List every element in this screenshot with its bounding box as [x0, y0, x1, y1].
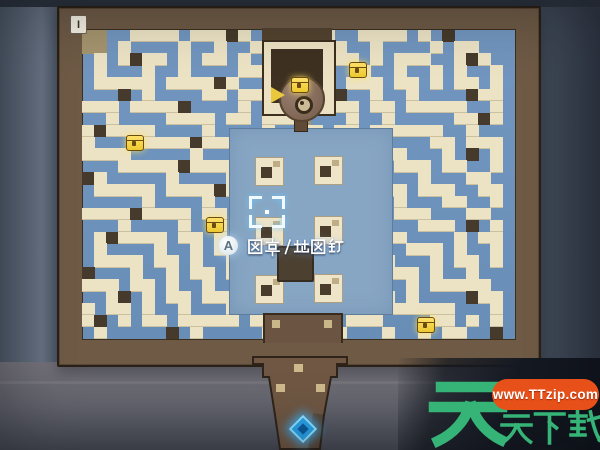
maze-cell: [442, 279, 455, 292]
maze-cell: [478, 172, 491, 185]
maze-cell: [454, 196, 467, 209]
maze-cell: [454, 243, 467, 256]
maze-cell: [82, 148, 95, 161]
maze-cell: [94, 232, 107, 245]
maze-cell: [106, 255, 119, 268]
maze-cell: [370, 53, 383, 66]
maze-cell: [154, 243, 167, 256]
maze-cell: [442, 315, 455, 328]
maze-cell: [490, 89, 503, 102]
maze-cell: [166, 160, 179, 173]
maze-cell: [442, 160, 455, 173]
maze-cell: [406, 303, 419, 316]
maze-cell: [238, 101, 251, 114]
maze-cell: [490, 291, 503, 304]
maze-cell: [238, 30, 251, 43]
maze-cell: [214, 315, 227, 328]
maze-cell: [382, 327, 395, 340]
chest-icon: [417, 317, 435, 333]
maze-cell: [94, 243, 107, 256]
maze-cell: [202, 267, 215, 280]
maze-cell: [418, 243, 431, 256]
glyph-di: [295, 241, 308, 252]
maze-cell: [370, 315, 383, 328]
maze-cell: [94, 41, 107, 54]
maze-cell: [178, 220, 191, 233]
exit-step: [272, 320, 280, 328]
maze-cell: [466, 315, 479, 328]
maze-cell: [490, 148, 503, 161]
maze-cell: [166, 267, 179, 280]
maze-cell: [370, 101, 383, 114]
maze-cell: [142, 89, 155, 102]
maze-cell: [478, 89, 491, 102]
maze-cell: [394, 148, 407, 161]
watermark-brand-glyphs: [500, 407, 600, 449]
cursor-corner: [249, 215, 262, 228]
maze-cell: [358, 77, 371, 90]
maze-cell: [382, 30, 395, 43]
maze-cell: [130, 255, 143, 268]
maze-cell: [394, 30, 407, 43]
maze-cell: [490, 113, 503, 126]
maze-cell: [190, 77, 203, 90]
maze-cell: [394, 65, 407, 78]
maze-cell: [466, 89, 479, 102]
maze-cell: [430, 279, 443, 292]
maze-cell: [166, 137, 179, 150]
maze-cell: [166, 327, 179, 340]
maze-cell: [94, 279, 107, 292]
maze-cell: [118, 255, 131, 268]
maze-cell: [190, 327, 203, 340]
maze-cell: [178, 65, 191, 78]
maze-cell: [490, 327, 503, 340]
maze-cell: [214, 184, 227, 197]
maze-cell: [430, 303, 443, 316]
maze-cell: [250, 65, 263, 78]
maze-cell: [478, 291, 491, 304]
block-shade: [332, 160, 339, 166]
maze-cell: [106, 113, 119, 126]
glyph-xia: [536, 414, 565, 443]
block-shade: [332, 220, 339, 226]
maze-cell: [154, 160, 167, 173]
maze-cell: [94, 53, 107, 66]
maze-cell: [178, 137, 191, 150]
maze-cell: [466, 53, 479, 66]
maze-cell: [418, 30, 431, 43]
maze-cell: [442, 184, 455, 197]
maze-cell: [454, 53, 467, 66]
chest-lock: [212, 223, 216, 228]
maze-cell: [118, 208, 131, 221]
maze-cell: [430, 65, 443, 78]
cursor-corner: [272, 215, 285, 228]
a-button-letter: A: [224, 238, 233, 253]
maze-cell: [106, 291, 119, 304]
maze-cell: [178, 315, 191, 328]
maze-cell: [82, 101, 95, 114]
chest-lock: [297, 83, 301, 88]
maze-cell: [190, 255, 203, 268]
maze-cell: [214, 30, 227, 43]
maze-cell: [346, 113, 359, 126]
chest-icon: [206, 217, 224, 233]
maze-cell: [214, 160, 227, 173]
maze-cell: [178, 160, 191, 173]
maze-cell: [214, 77, 227, 90]
maze-cell: [130, 267, 143, 280]
maze-cell: [142, 184, 155, 197]
maze-cell: [142, 53, 155, 66]
maze-cell: [442, 101, 455, 114]
glyph-tu: [249, 240, 262, 253]
maze-cell: [226, 77, 239, 90]
maze-cell: [214, 41, 227, 54]
block-inset: [320, 226, 331, 237]
maze-cell: [478, 208, 491, 221]
maze-cell: [154, 101, 167, 114]
maze-cell: [166, 279, 179, 292]
maze-cell: [454, 77, 467, 90]
maze-cell: [406, 77, 419, 90]
maze-cell: [190, 243, 203, 256]
maze-cell: [490, 184, 503, 197]
maze-cell: [106, 279, 119, 292]
maze-cell: [94, 172, 107, 185]
maze-cell: [430, 220, 443, 233]
maze-cell: [130, 160, 143, 173]
maze-cell: [442, 30, 455, 43]
maze-cell: [250, 41, 263, 54]
glyph-tu2: [312, 240, 325, 253]
maze-cell: [346, 101, 359, 114]
maze-cell: [394, 232, 407, 245]
maze-cell: [250, 89, 263, 102]
maze-cell: [178, 77, 191, 90]
maze-cell: [118, 232, 131, 245]
maze-cell: [454, 255, 467, 268]
entrance-step: [294, 364, 303, 372]
maze-cell: [142, 208, 155, 221]
maze-cell: [190, 315, 203, 328]
maze-cell: [238, 89, 251, 102]
maze-cell: [430, 125, 443, 138]
maze-cell: [406, 53, 419, 66]
maze-cell: [214, 137, 227, 150]
maze-cell: [130, 279, 143, 292]
maze-cell: [394, 160, 407, 173]
maze-cell: [202, 160, 215, 173]
maze-cell: [466, 267, 479, 280]
maze-cell: [454, 160, 467, 173]
maze-cell: [202, 291, 215, 304]
maze-cell: [190, 137, 203, 150]
maze-cell: [142, 315, 155, 328]
maze-cell: [430, 101, 443, 114]
maze-cell: [94, 77, 107, 90]
background-right: [537, 0, 600, 366]
maze-cell: [106, 125, 119, 138]
maze-cell: [178, 113, 191, 126]
maze-cell: [106, 101, 119, 114]
maze-cell: [430, 77, 443, 90]
maze-cell: [154, 30, 167, 43]
maze-cell: [202, 53, 215, 66]
region-label-badge: I: [70, 15, 87, 34]
maze-cell: [490, 232, 503, 245]
maze-cell: [118, 220, 131, 233]
maze-cell: [82, 208, 95, 221]
maze-cell: [142, 160, 155, 173]
chest-lock: [355, 68, 359, 73]
maze-cell: [466, 41, 479, 54]
maze-cell: [430, 184, 443, 197]
maze-cell: [406, 279, 419, 292]
maze-cell: [202, 196, 215, 209]
maze-cell: [430, 41, 443, 54]
maze-cell: [106, 77, 119, 90]
maze-cell: [142, 30, 155, 43]
platform-block: [255, 157, 284, 186]
maze-cell: [466, 279, 479, 292]
maze-cell: [166, 172, 179, 185]
maze-cell: [106, 184, 119, 197]
maze-cell: [394, 77, 407, 90]
watermark-url-pill: www.TTzip.com: [492, 379, 599, 410]
maze-cell: [190, 148, 203, 161]
maze-cell: [226, 30, 239, 43]
maze-cell: [178, 303, 191, 316]
hint-label-glyphs: [248, 238, 344, 257]
maze-cell: [490, 137, 503, 150]
platform-block: [314, 274, 343, 303]
maze-cell: [118, 89, 131, 102]
maze-cell: [94, 148, 107, 161]
maze-cell: [466, 291, 479, 304]
maze-cell: [142, 232, 155, 245]
maze-cell: [154, 53, 167, 66]
region-label: I: [77, 19, 80, 31]
maze-cell: [490, 255, 503, 268]
maze-cell: [250, 315, 263, 328]
maze-cell: [466, 113, 479, 126]
maze-cell: [94, 255, 107, 268]
maze-cell: [94, 327, 107, 340]
maze-cell: [142, 196, 155, 209]
maze-cell: [82, 303, 95, 316]
map-cursor[interactable]: [249, 196, 285, 228]
maze-cell: [106, 208, 119, 221]
maze-cell: [154, 315, 167, 328]
maze-cell: [406, 208, 419, 221]
maze-cell: [238, 65, 251, 78]
maze-cell: [130, 184, 143, 197]
maze-cell: [394, 125, 407, 138]
maze-cell: [346, 315, 359, 328]
glyph-ding: [329, 239, 342, 251]
block-inset: [261, 227, 272, 238]
maze-cell: [358, 30, 371, 43]
maze-cell: [418, 303, 431, 316]
maze-cell: [406, 89, 419, 102]
maze-cell: [370, 41, 383, 54]
maze-cell: [130, 77, 143, 90]
maze-cell: [190, 232, 203, 245]
maze-cell: [178, 208, 191, 221]
maze-cell: [166, 255, 179, 268]
maze-cell: [94, 208, 107, 221]
maze-cell: [226, 113, 239, 126]
maze-cell: [490, 101, 503, 114]
maze-cell: [466, 125, 479, 138]
maze-cell: [490, 65, 503, 78]
maze-cell: [166, 101, 179, 114]
maze-cell: [178, 291, 191, 304]
maze-cell: [118, 303, 131, 316]
maze-cell: [478, 279, 491, 292]
maze-cell: [166, 184, 179, 197]
maze-cell: [370, 89, 383, 102]
maze-cell: [442, 303, 455, 316]
maze-cell: [166, 113, 179, 126]
chest-lock: [132, 141, 136, 146]
maze-cell: [454, 41, 467, 54]
chest-lock: [423, 323, 427, 328]
entrance-step: [316, 384, 325, 392]
maze-cell: [406, 243, 419, 256]
maze-cell: [490, 315, 503, 328]
maze-cell: [238, 113, 251, 126]
maze-cell: [490, 303, 503, 316]
maze-cell: [454, 65, 467, 78]
maze-cell: [118, 160, 131, 173]
maze-cell: [442, 148, 455, 161]
maze-cell: [82, 172, 95, 185]
maze-cell: [190, 30, 203, 43]
maze-cell: [466, 77, 479, 90]
maze-cell: [202, 184, 215, 197]
maze-cell: [406, 291, 419, 304]
maze-cell: [466, 148, 479, 161]
block-shade: [332, 278, 339, 284]
maze-cell: [430, 137, 443, 150]
maze-cell: [214, 89, 227, 102]
maze-cell: [142, 65, 155, 78]
maze-cell: [394, 303, 407, 316]
maze-cell: [466, 172, 479, 185]
chest-icon: [126, 135, 144, 151]
maze-cell: [382, 101, 395, 114]
maze-cell: [178, 184, 191, 197]
block-shade: [273, 161, 280, 167]
maze-cell: [418, 101, 431, 114]
maze-cell: [418, 220, 431, 233]
maze-cell: [202, 77, 215, 90]
maze-cell: [190, 113, 203, 126]
maze-cell: [394, 196, 407, 209]
maze-cell: [130, 232, 143, 245]
background-left-glare: [0, 0, 60, 366]
maze-cell: [166, 291, 179, 304]
maze-cell: [154, 255, 167, 268]
maze-cell: [118, 291, 131, 304]
maze-cell: [82, 267, 95, 280]
glyph-slash: [286, 240, 291, 253]
maze-cell: [94, 184, 107, 197]
maze-cell: [142, 77, 155, 90]
maze-cell: [142, 125, 155, 138]
maze-cell: [202, 125, 215, 138]
glyph-zai: [570, 411, 600, 441]
maze-cell: [202, 30, 215, 43]
maze-cell: [490, 160, 503, 173]
maze-cell: [466, 208, 479, 221]
maze-cell: [442, 220, 455, 233]
maze-cell: [154, 137, 167, 150]
maze-cell: [430, 243, 443, 256]
cursor-corner: [272, 196, 285, 209]
maze-cell: [478, 113, 491, 126]
south-exit-passage: [263, 313, 343, 343]
maze-cell: [154, 232, 167, 245]
maze-cell: [406, 125, 419, 138]
maze-cell: [142, 291, 155, 304]
maze-cell: [202, 315, 215, 328]
screenshot-photo: I A 图章/地: [0, 0, 600, 450]
maze-cell: [130, 53, 143, 66]
glyph-tian: [502, 416, 531, 443]
maze-cell: [166, 77, 179, 90]
maze-cell: [454, 101, 467, 114]
maze-cell: [394, 267, 407, 280]
maze-cell: [130, 101, 143, 114]
maze-cell: [82, 279, 95, 292]
maze-cell: [394, 208, 407, 221]
maze-cell: [478, 232, 491, 245]
maze-cell: [178, 41, 191, 54]
maze-cell: [178, 232, 191, 245]
maze-cell: [418, 208, 431, 221]
maze-cell: [202, 113, 215, 126]
maze-cell: [118, 184, 131, 197]
maze-cell: [406, 160, 419, 173]
maze-cell: [190, 160, 203, 173]
maze-cell: [214, 53, 227, 66]
maze-cell: [94, 315, 107, 328]
maze-cell: [490, 220, 503, 233]
maze-cell: [118, 315, 131, 328]
maze-cell: [454, 232, 467, 245]
maze-cell: [442, 196, 455, 209]
maze-cell: [346, 77, 359, 90]
maze-cell: [418, 184, 431, 197]
maze-cell: [94, 125, 107, 138]
a-button-icon[interactable]: A: [219, 236, 238, 255]
maze-cell: [418, 53, 431, 66]
maze-cell: [466, 255, 479, 268]
maze-cell: [394, 184, 407, 197]
floor-switch-icon: [295, 96, 313, 114]
maze-cell: [226, 315, 239, 328]
block-inset: [320, 284, 331, 295]
maze-cell: [106, 232, 119, 245]
maze-cell: [82, 41, 95, 54]
maze-cell: [202, 89, 215, 102]
entrance-step: [276, 384, 285, 392]
maze-cell: [418, 160, 431, 173]
